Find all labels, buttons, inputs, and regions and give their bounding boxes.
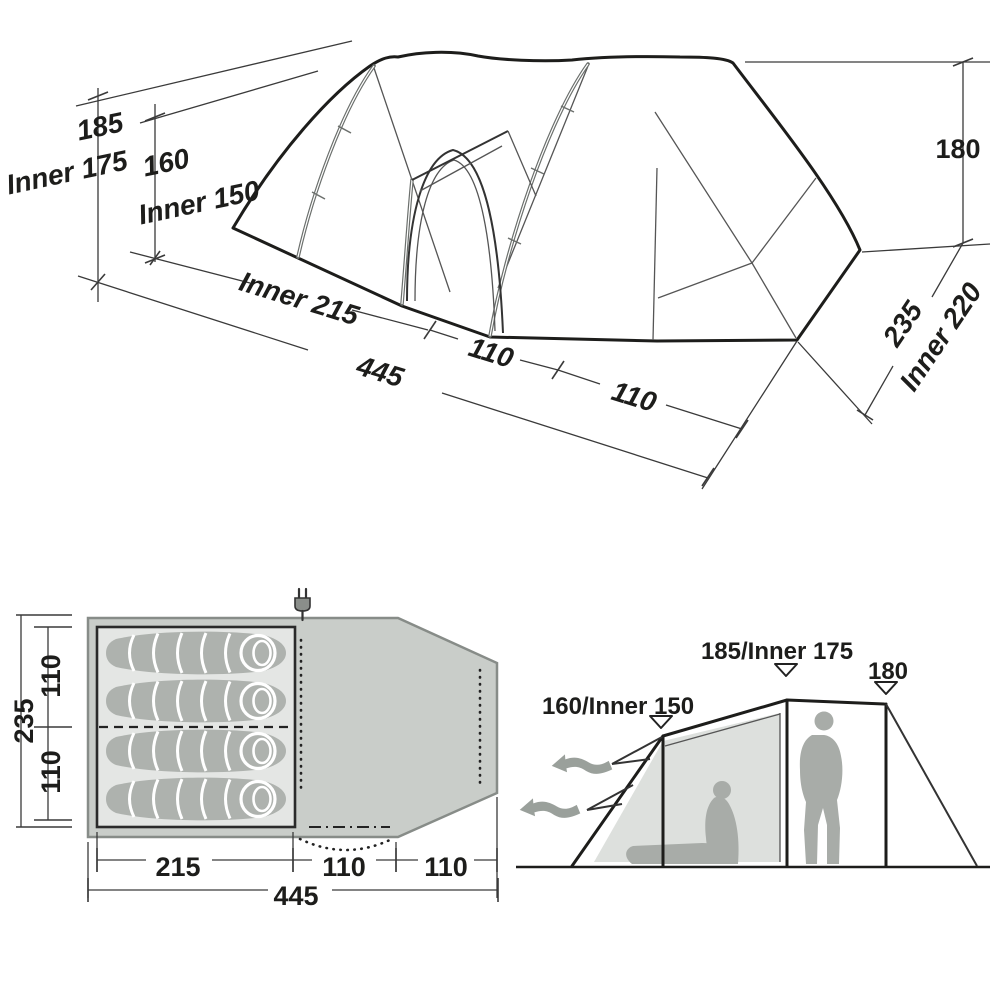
elev-label-main-height: 185/Inner 175 — [701, 638, 853, 665]
main-pointer-triangle — [775, 664, 797, 676]
elev-label-rear-height: 180 — [868, 658, 908, 685]
top-view-3d: 185 Inner 175 160 Inner 150 Inner 215 44… — [4, 41, 990, 489]
mesh-panel — [594, 713, 780, 862]
plan-label-length-seg1: 110 — [322, 852, 366, 882]
plan-label-length-seg2: 110 — [424, 852, 468, 882]
door-arc-dotted — [300, 839, 392, 850]
airflow-arrows — [518, 747, 612, 826]
dim-label-length-total: 445 — [352, 350, 407, 394]
porch-pointer-triangle — [650, 716, 672, 728]
dim-label-height-rear: 180 — [935, 134, 980, 164]
plan-label-width-total: 235 — [9, 698, 39, 743]
standing-person-silhouette — [800, 712, 843, 865]
plan-label-length-inner: 215 — [155, 852, 200, 882]
plan-label-width-bottom: 110 — [36, 750, 66, 794]
plan-label-width-top: 110 — [36, 654, 66, 698]
dim-label-height-main: 185 — [74, 106, 127, 146]
floor-plan: 235 110 110 215 110 110 445 — [9, 589, 498, 911]
rear-pointer-triangle — [875, 682, 897, 694]
tent-dimension-figure: 185 Inner 175 160 Inner 150 Inner 215 44… — [0, 0, 1000, 1000]
dim-label-height-porch: 160 — [140, 142, 193, 182]
plan-label-length-total: 445 — [273, 881, 318, 911]
power-plug-icon — [295, 589, 310, 620]
elevation-labels: 160/Inner 150 185/Inner 175 180 — [542, 638, 908, 728]
dim-label-height-main-inner: Inner 175 — [4, 144, 131, 200]
side-elevation: 160/Inner 150 185/Inner 175 180 — [516, 638, 990, 867]
dim-label-length-seg2: 110 — [608, 375, 660, 418]
tent-diagram-canvas: 185 Inner 175 160 Inner 150 Inner 215 44… — [0, 0, 1000, 1000]
